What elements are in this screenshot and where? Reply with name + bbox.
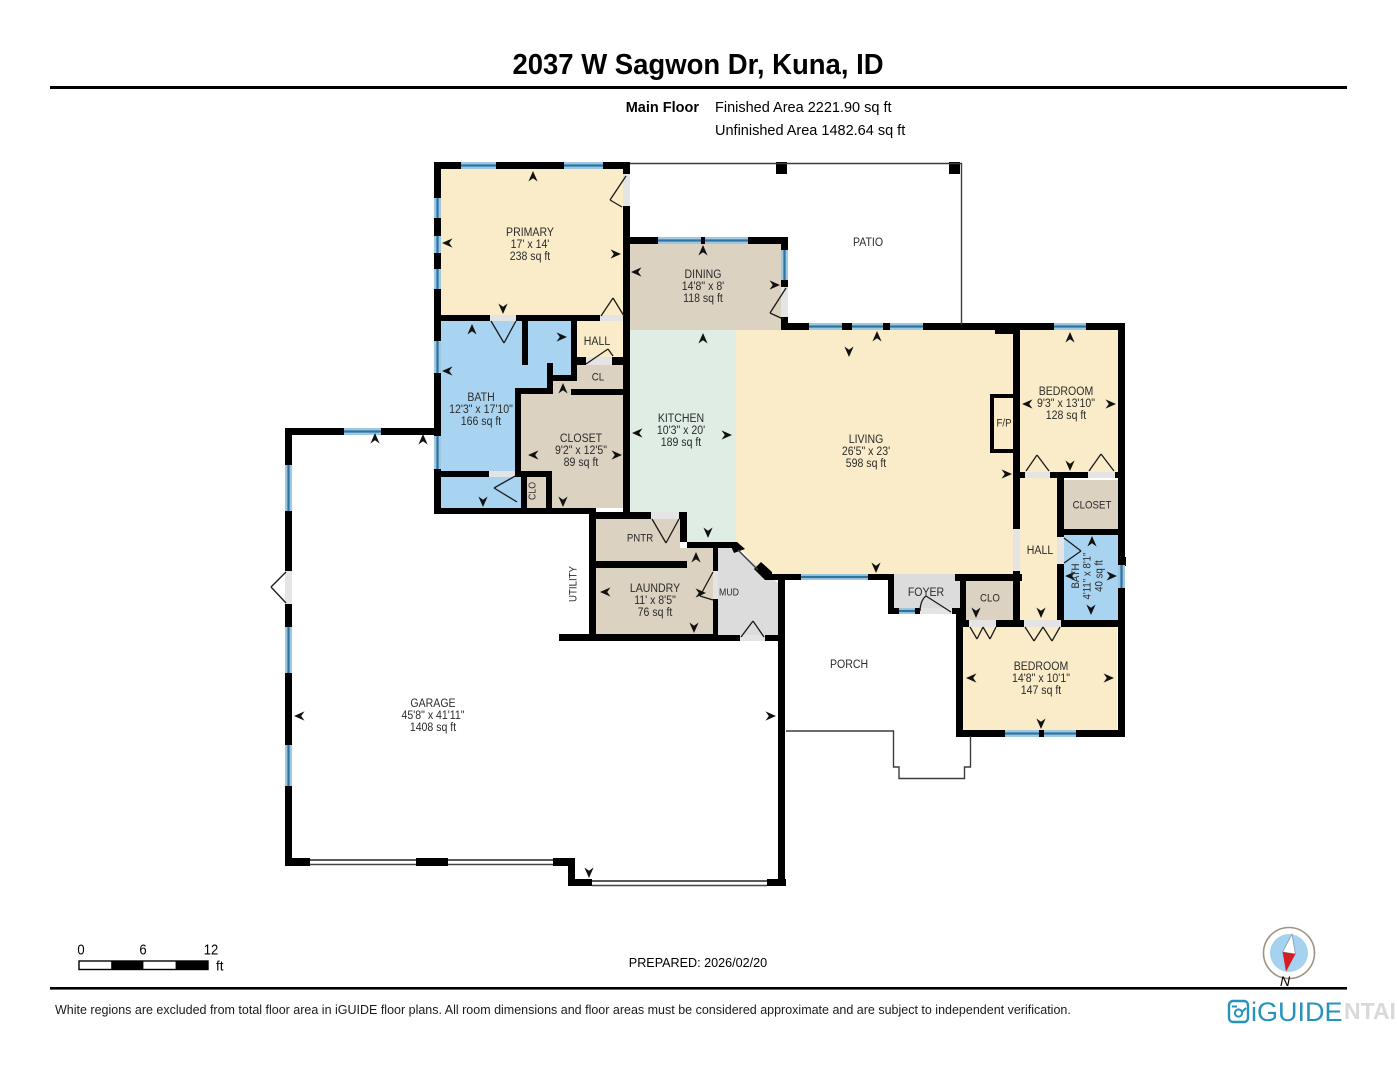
svg-text:PATIO: PATIO — [853, 237, 883, 250]
svg-text:ft: ft — [216, 959, 224, 974]
svg-text:LIVING: LIVING — [849, 434, 884, 447]
svg-text:N: N — [1280, 973, 1291, 989]
svg-text:11' x 8'5": 11' x 8'5" — [634, 595, 676, 608]
svg-text:14'8" x 10'1": 14'8" x 10'1" — [1012, 673, 1070, 686]
svg-text:14'8" x 8': 14'8" x 8' — [682, 281, 724, 294]
svg-text:40 sq ft: 40 sq ft — [1094, 560, 1106, 592]
svg-text:Finished Area 2221.90 sq ft: Finished Area 2221.90 sq ft — [715, 100, 892, 116]
svg-text:1408 sq ft: 1408 sq ft — [410, 721, 457, 734]
svg-text:FOYER: FOYER — [908, 587, 944, 600]
svg-text:4'11" x 8'1": 4'11" x 8'1" — [1082, 552, 1094, 599]
svg-text:MUD: MUD — [719, 586, 739, 598]
svg-text:26'5" x 23': 26'5" x 23' — [842, 446, 890, 459]
svg-text:BATH: BATH — [467, 392, 494, 405]
svg-text:CLOSET: CLOSET — [1073, 500, 1112, 512]
svg-text:238 sq ft: 238 sq ft — [510, 250, 551, 263]
svg-text:89 sq ft: 89 sq ft — [564, 456, 599, 469]
svg-text:HALL: HALL — [584, 336, 610, 349]
svg-text:10'3" x 20': 10'3" x 20' — [657, 425, 705, 438]
svg-text:118 sq ft: 118 sq ft — [683, 292, 724, 305]
svg-text:147 sq ft: 147 sq ft — [1021, 684, 1062, 697]
svg-text:189 sq ft: 189 sq ft — [661, 436, 702, 449]
svg-text:LAUNDRY: LAUNDRY — [630, 583, 681, 596]
svg-text:166 sq ft: 166 sq ft — [461, 415, 502, 428]
svg-text:iGUIDE: iGUIDE — [1251, 997, 1343, 1027]
svg-text:UTILITY: UTILITY — [568, 566, 580, 602]
svg-text:DINING: DINING — [685, 269, 722, 282]
svg-text:9'3" x 13'10": 9'3" x 13'10" — [1037, 398, 1095, 411]
svg-text:PNTR: PNTR — [627, 533, 653, 545]
svg-text:12: 12 — [204, 942, 219, 958]
svg-text:CLO: CLO — [526, 482, 538, 500]
svg-text:NTAIN: NTAIN — [1344, 998, 1397, 1024]
svg-text:BATH: BATH — [1070, 563, 1082, 588]
svg-text:KITCHEN: KITCHEN — [658, 413, 704, 426]
svg-text:White regions are excluded fro: White regions are excluded from total fl… — [55, 1003, 1071, 1017]
svg-text:CLOSET: CLOSET — [560, 433, 602, 446]
svg-text:F/P: F/P — [996, 418, 1011, 430]
svg-text:17' x 14': 17' x 14' — [511, 239, 550, 252]
svg-text:9'2" x 12'5": 9'2" x 12'5" — [555, 445, 607, 458]
svg-text:CLO: CLO — [980, 593, 1000, 605]
svg-text:Unfinished Area 1482.64 sq ft: Unfinished Area 1482.64 sq ft — [715, 123, 905, 139]
svg-text:2037 W Sagwon Dr, Kuna, ID: 2037 W Sagwon Dr, Kuna, ID — [512, 49, 883, 81]
svg-text:HALL: HALL — [1027, 545, 1053, 558]
svg-text:6: 6 — [139, 942, 147, 958]
svg-text:PORCH: PORCH — [830, 659, 868, 672]
svg-text:BEDROOM: BEDROOM — [1014, 661, 1069, 674]
svg-text:598 sq ft: 598 sq ft — [846, 457, 887, 470]
svg-text:12'3" x 17'10": 12'3" x 17'10" — [449, 404, 513, 417]
svg-text:Main Floor: Main Floor — [626, 100, 700, 116]
svg-text:BEDROOM: BEDROOM — [1039, 386, 1094, 399]
svg-text:PRIMARY: PRIMARY — [506, 227, 554, 240]
svg-text:CL: CL — [592, 372, 605, 384]
svg-text:0: 0 — [77, 942, 85, 958]
svg-text:PREPARED: 2026/02/20: PREPARED: 2026/02/20 — [629, 956, 767, 970]
svg-text:76 sq ft: 76 sq ft — [638, 606, 673, 619]
svg-text:45'8" x 41'11": 45'8" x 41'11" — [402, 710, 465, 723]
svg-text:128 sq ft: 128 sq ft — [1046, 409, 1087, 422]
svg-text:GARAGE: GARAGE — [410, 698, 456, 711]
